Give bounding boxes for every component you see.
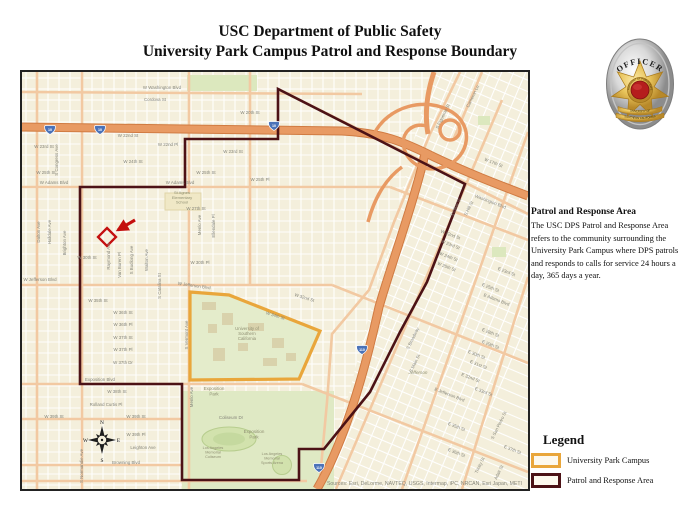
- street-label: W 37th Pl: [113, 347, 132, 352]
- street-label: W 25th St: [196, 170, 216, 175]
- street-label: Exposition Blvd: [85, 377, 116, 382]
- street-label: Raymond Ave: [106, 242, 111, 270]
- area-label: Jefferson: [408, 370, 428, 375]
- compass-s: S: [101, 458, 104, 464]
- street-label: Ellendale Pl: [211, 214, 216, 237]
- police-badge-icon: OFFICER DEPARTMENT OF PUBLIC SAFETY UNIV…: [604, 36, 676, 132]
- street-label: Menlo Ave: [189, 386, 194, 407]
- street-label: Van Buren Pl: [117, 252, 122, 278]
- street-label: W 24th St: [123, 159, 143, 164]
- svg-text:10: 10: [98, 128, 102, 132]
- street-label: W 37th Dr: [113, 360, 133, 365]
- info-panel-body: The USC DPS Patrol and Response Area ref…: [531, 220, 679, 283]
- street-label: Browning Blvd: [112, 460, 141, 465]
- street-label: W Adams Blvd: [40, 180, 69, 185]
- street-label: W 38th St: [107, 389, 127, 394]
- legend-heading: Legend: [543, 432, 679, 448]
- street-label: W 37th St: [113, 335, 133, 340]
- street-label: Rolland Curtis Pl: [90, 402, 123, 407]
- svg-text:110: 110: [316, 466, 322, 470]
- street-label: S Normandie Ave: [79, 448, 84, 483]
- street-label: Halldale Ave: [47, 219, 52, 244]
- street-label: W 36th St: [113, 310, 133, 315]
- street-label: W 39th Pl: [126, 432, 145, 437]
- street-label: Menlo Ave: [197, 214, 202, 235]
- info-panel-heading: Patrol and Response Area: [531, 207, 679, 217]
- compass-n: N: [100, 420, 104, 426]
- street-label: Walton Ave: [144, 248, 149, 271]
- page-title-line1: USC Department of Public Safety: [20, 22, 640, 42]
- svg-text:10: 10: [48, 128, 52, 132]
- street-label: Cordova St: [144, 97, 167, 102]
- street-label: W 30th St: [77, 255, 97, 260]
- street-label: Dalton Ave: [36, 221, 41, 243]
- svg-text:110: 110: [359, 348, 365, 352]
- map-document-page: USC Department of Public Safety Universi…: [0, 0, 680, 510]
- patrol-boundary-swatch: [531, 473, 561, 488]
- svg-text:10: 10: [272, 124, 276, 128]
- street-label: Brighton Ave: [62, 230, 67, 255]
- street-label: S Vermont Ave: [184, 320, 189, 350]
- street-label: Leighton Ave: [130, 445, 156, 450]
- page-title: USC Department of Public Safety Universi…: [20, 22, 640, 62]
- street-label: S Catalina St: [157, 272, 162, 298]
- street-label: W 27th St: [186, 206, 206, 211]
- police-badge: OFFICER DEPARTMENT OF PUBLIC SAFETY UNIV…: [604, 36, 676, 132]
- street-label: W Washington Blvd: [143, 85, 182, 90]
- street-label: W 23rd St: [223, 149, 243, 154]
- info-panel: Patrol and Response Area The USC DPS Pat…: [531, 207, 679, 283]
- street-label: W Adams Blvd: [166, 180, 195, 185]
- street-label: W 39th St: [126, 414, 146, 419]
- street-label: Coliseum Dr: [219, 415, 244, 420]
- street-label: W 35th St: [88, 298, 108, 303]
- legend-item-patrol: Patrol and Response Area: [531, 473, 679, 488]
- street-label: W 20th St: [240, 110, 260, 115]
- legend-item-label: Patrol and Response Area: [567, 476, 653, 485]
- street-label: W 36th Pl: [113, 322, 132, 327]
- street-label: W 22nd St: [118, 133, 139, 138]
- street-label: W 23rd St: [34, 144, 54, 149]
- street-label: W 22nd Pl: [158, 142, 178, 147]
- legend-item-label: University Park Campus: [567, 456, 649, 465]
- area-label: Los AngelesMemorialColiseum: [203, 446, 224, 459]
- legend: Legend University Park Campus Patrol and…: [531, 432, 679, 493]
- street-label: S Congress Ave: [54, 144, 59, 176]
- legend-item-campus: University Park Campus: [531, 453, 679, 468]
- map-canvas: N E S W 101010110110 W Washington BlvdCo…: [20, 70, 530, 491]
- street-label: W 30th Pl: [190, 260, 209, 265]
- map-svg: N E S W 101010110110 W Washington BlvdCo…: [22, 72, 528, 489]
- street-label: W Jefferson Blvd: [23, 277, 57, 282]
- street-label: S Budlong Ave: [129, 245, 134, 274]
- campus-boundary-swatch: [531, 453, 561, 468]
- street-label: W 39th St: [44, 414, 64, 419]
- map-attribution: Sources: Esri, DeLorme, NAVTEQ, USGS, In…: [327, 481, 522, 487]
- page-title-line2: University Park Campus Patrol and Respon…: [20, 42, 640, 62]
- street-label: W 25th Pl: [250, 177, 269, 182]
